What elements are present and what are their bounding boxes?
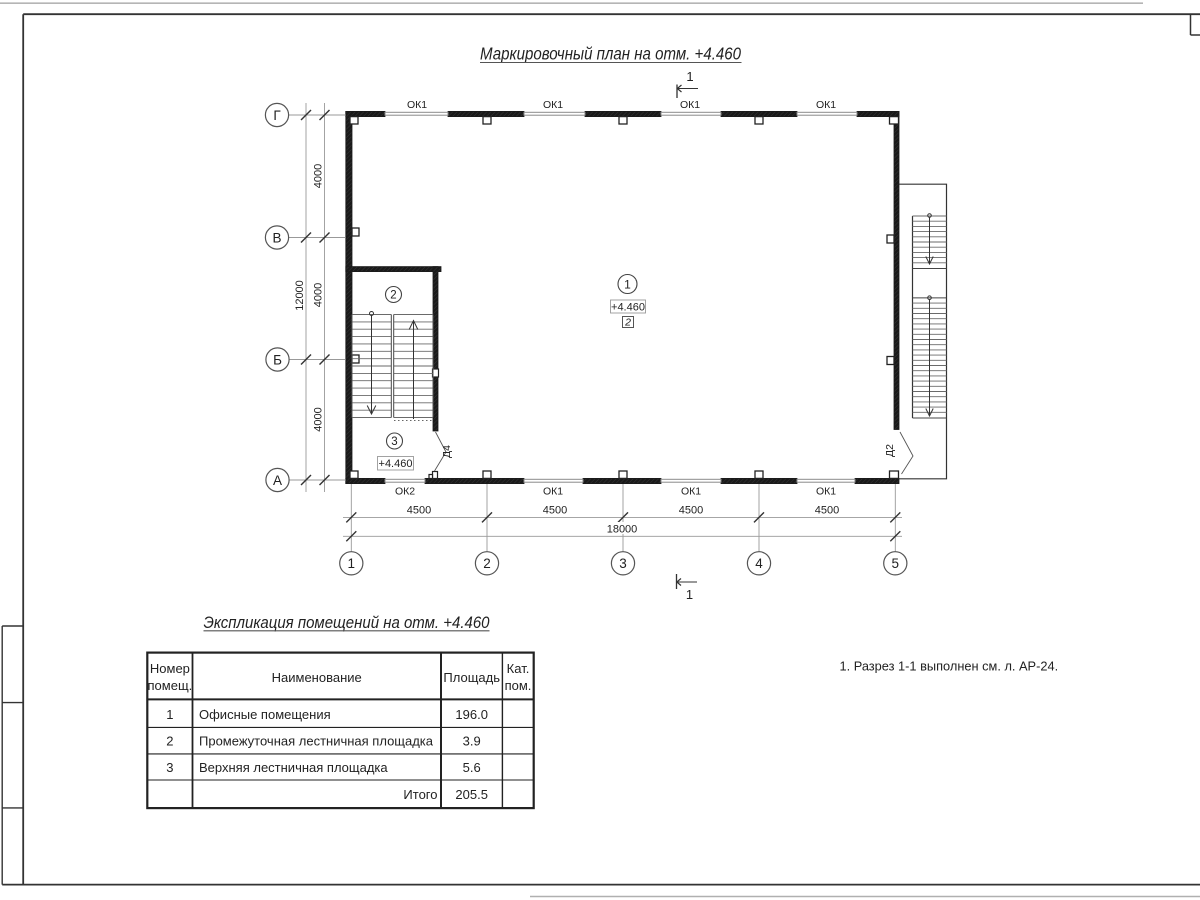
svg-text:1: 1 <box>624 278 631 292</box>
svg-text:Б: Б <box>273 352 282 367</box>
svg-text:1. Разрез 1-1 выполнен см. л.: 1. Разрез 1-1 выполнен см. л. АР-24. <box>840 659 1059 674</box>
svg-text:2: 2 <box>390 290 396 302</box>
svg-text:5: 5 <box>892 556 900 571</box>
svg-text:Верхняя лестничная площадка: Верхняя лестничная площадка <box>199 760 388 775</box>
svg-text:Г: Г <box>273 108 281 123</box>
svg-text:В: В <box>272 230 281 245</box>
svg-text:12000: 12000 <box>294 280 306 311</box>
svg-text:Д4: Д4 <box>441 445 453 458</box>
svg-text:1: 1 <box>686 587 693 602</box>
svg-text:ОК1: ОК1 <box>681 486 701 498</box>
svg-text:3: 3 <box>166 760 173 775</box>
svg-text:ОК2: ОК2 <box>395 486 415 498</box>
svg-text:Офисные помещения: Офисные помещения <box>199 707 331 722</box>
svg-text:Номер: Номер <box>150 661 190 676</box>
svg-text:4000: 4000 <box>313 164 325 188</box>
svg-text:2: 2 <box>483 556 491 571</box>
svg-text:ОК1: ОК1 <box>680 99 700 111</box>
svg-text:пом.: пом. <box>505 678 532 693</box>
svg-text:1: 1 <box>686 69 693 84</box>
svg-text:205.5: 205.5 <box>455 787 488 802</box>
svg-text:Экспликация помещений на отм.: Экспликация помещений на отм. +4.460 <box>204 613 490 632</box>
svg-text:Итого: Итого <box>403 787 437 802</box>
svg-text:4000: 4000 <box>313 283 325 307</box>
svg-text:Маркировочный план на отм. +4.: Маркировочный план на отм. +4.460 <box>480 44 741 64</box>
svg-text:1: 1 <box>166 707 173 722</box>
svg-text:196.0: 196.0 <box>455 707 488 722</box>
svg-text:Кат.: Кат. <box>507 661 530 676</box>
svg-text:1: 1 <box>348 556 356 571</box>
svg-text:2: 2 <box>166 734 173 749</box>
svg-text:3: 3 <box>391 436 397 448</box>
svg-text:18000: 18000 <box>607 524 638 536</box>
svg-text:4500: 4500 <box>543 505 567 517</box>
svg-text:4500: 4500 <box>815 505 839 517</box>
svg-text:Площадь: Площадь <box>443 670 500 685</box>
svg-text:ОК1: ОК1 <box>543 99 563 111</box>
svg-text:+4.460: +4.460 <box>611 302 645 314</box>
svg-text:4500: 4500 <box>407 505 431 517</box>
svg-text:3.9: 3.9 <box>463 734 481 749</box>
svg-text:3: 3 <box>619 556 627 571</box>
svg-text:ОК1: ОК1 <box>816 99 836 111</box>
svg-text:5.6: 5.6 <box>463 760 481 775</box>
svg-text:ОК1: ОК1 <box>407 99 427 111</box>
svg-text:4500: 4500 <box>679 505 703 517</box>
svg-text:Наименование: Наименование <box>272 670 362 685</box>
svg-text:Д2: Д2 <box>884 444 896 457</box>
svg-text:ОК1: ОК1 <box>543 486 563 498</box>
svg-text:4000: 4000 <box>313 407 325 431</box>
svg-text:Промежуточная лестничная площа: Промежуточная лестничная площадка <box>199 734 434 749</box>
svg-text:А: А <box>273 473 282 488</box>
svg-text:помещ.: помещ. <box>148 678 193 693</box>
svg-text:4: 4 <box>755 556 763 571</box>
svg-text:ОК1: ОК1 <box>816 486 836 498</box>
svg-text:2: 2 <box>624 317 631 329</box>
svg-text:+4.460: +4.460 <box>379 458 413 470</box>
